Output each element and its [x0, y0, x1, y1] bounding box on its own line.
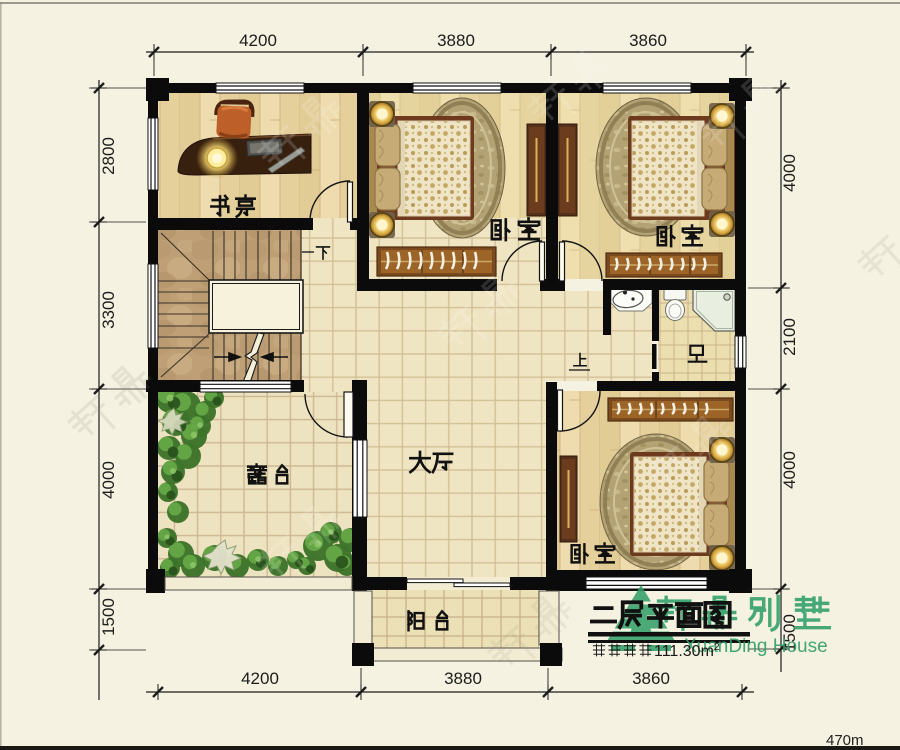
- svg-text:4200: 4200: [241, 669, 279, 688]
- svg-text:3860: 3860: [629, 31, 667, 50]
- svg-text:4200: 4200: [239, 31, 277, 50]
- svg-text:3880: 3880: [444, 669, 482, 688]
- svg-text:4000: 4000: [780, 154, 799, 192]
- svg-text:4000: 4000: [780, 451, 799, 489]
- svg-text:1500: 1500: [99, 598, 118, 636]
- svg-text:2800: 2800: [99, 137, 118, 175]
- svg-text:3880: 3880: [437, 31, 475, 50]
- svg-text:2100: 2100: [780, 318, 799, 356]
- svg-text:2: 2: [714, 642, 720, 653]
- svg-text:111.30m: 111.30m: [654, 643, 714, 660]
- svg-text:4000: 4000: [99, 461, 118, 499]
- svg-text:3860: 3860: [632, 669, 670, 688]
- svg-text:3300: 3300: [99, 291, 118, 329]
